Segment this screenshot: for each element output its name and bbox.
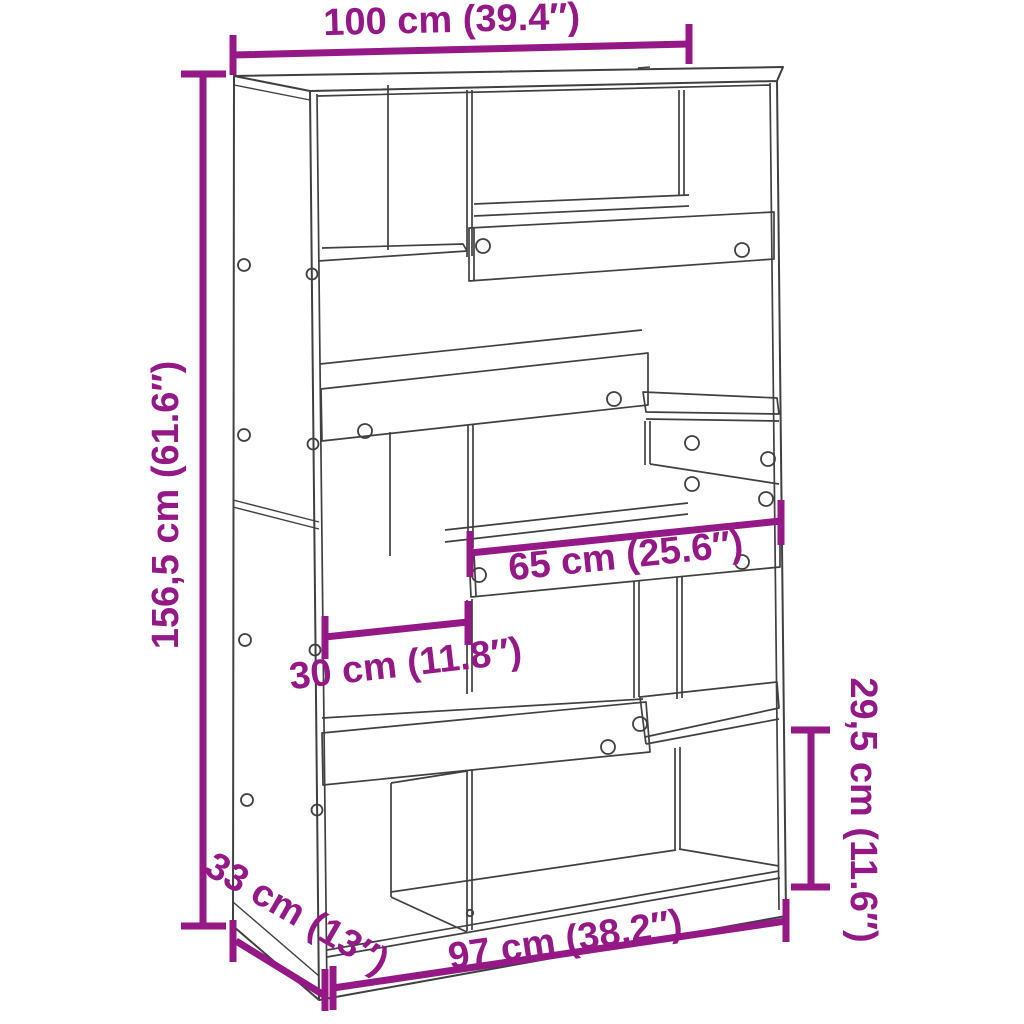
dim-line-156 [181, 74, 226, 926]
cam-hole [633, 717, 647, 731]
label-compartment-height: 29,5 cm (11.6″) [842, 677, 884, 942]
cam-hole [685, 436, 699, 450]
dim-line-295 [791, 730, 830, 887]
bookcase-diagram-canvas: 100 cm (39.4″) 156,5 cm (61.6″) 65 cm (2… [0, 0, 1024, 1024]
cam-hole-markers [238, 239, 775, 916]
shelf-top-left [318, 244, 467, 261]
dimension-height-line [181, 74, 226, 926]
dimension-labels: 100 cm (39.4″) 156,5 cm (61.6″) 65 cm (2… [145, 0, 884, 983]
shelf-band-level1 [469, 195, 774, 281]
cam-hole [238, 429, 250, 441]
cam-hole [735, 243, 749, 257]
shelf-band-level4 [322, 699, 650, 785]
cam-hole [685, 477, 699, 491]
dividers-mid-right [634, 576, 682, 699]
cam-hole [601, 740, 615, 754]
divider-bottom-right [675, 747, 680, 850]
label-top-width: 100 cm (39.4″) [323, 0, 581, 44]
cam-hole [476, 239, 490, 253]
dimension-compartment-height-line [791, 730, 830, 887]
furniture-dimension-diagram: 100 cm (39.4″) 156,5 cm (61.6″) 65 cm (2… [0, 0, 1024, 1024]
divider-top-left [388, 85, 472, 257]
label-shelf-width: 65 cm (25.6″) [506, 523, 745, 589]
left-panel-details [233, 85, 319, 976]
cam-hole [239, 634, 251, 646]
label-depth: 33 cm (13″) [198, 844, 396, 982]
cam-hole [761, 452, 775, 466]
cam-hole [472, 568, 486, 582]
cam-hole [759, 492, 773, 506]
label-bottom-width: 97 cm (38.2″) [446, 902, 685, 978]
dimension-lines [181, 24, 830, 1011]
divider-bottom-center [391, 770, 472, 932]
divider-top-right [679, 90, 684, 196]
divider-mid [390, 424, 473, 556]
shelf-right-level2 [643, 392, 779, 484]
cam-hole [238, 259, 250, 271]
shelf-right-level4 [640, 682, 779, 744]
cam-hole [241, 794, 253, 806]
cam-hole [607, 392, 621, 406]
label-height: 156,5 cm (61.6″) [145, 361, 187, 650]
